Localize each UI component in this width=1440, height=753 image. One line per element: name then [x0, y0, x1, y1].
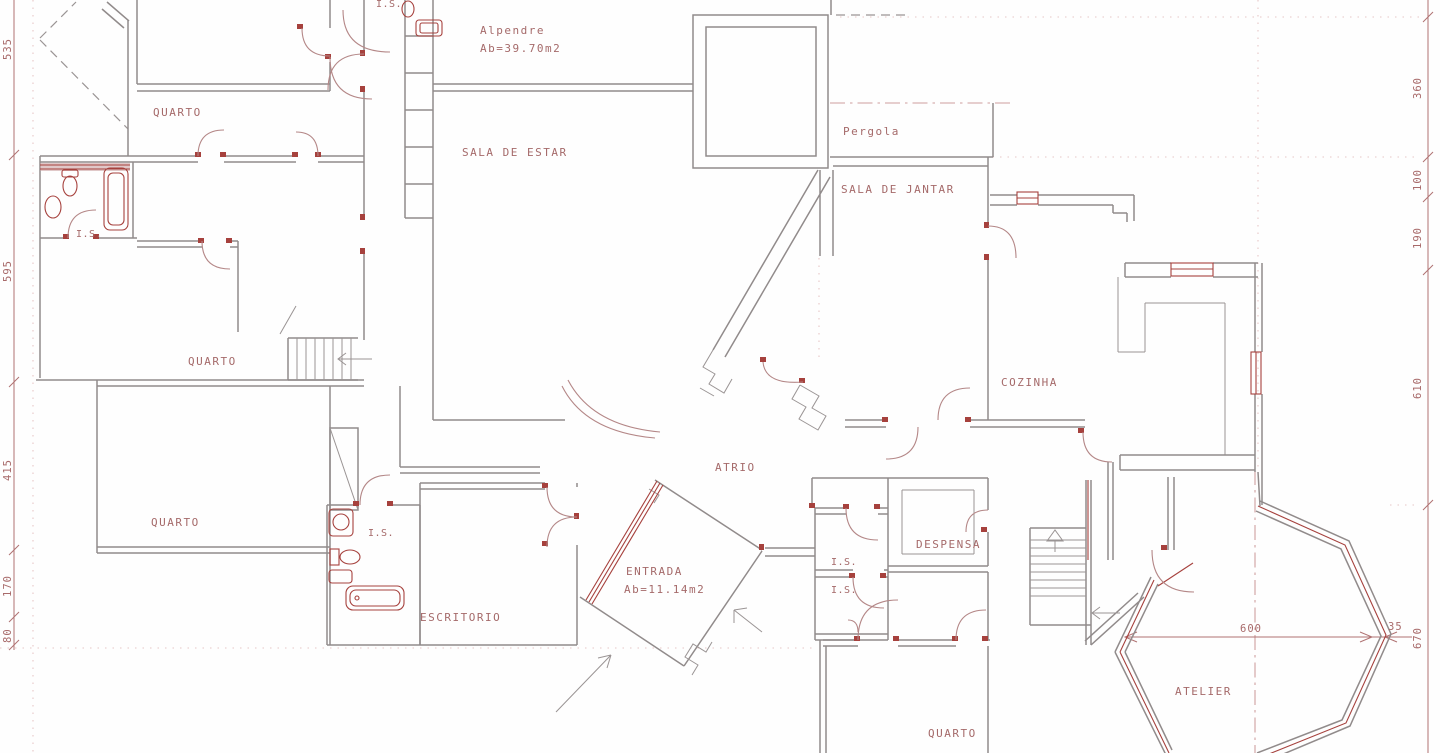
room-area-entrada: Ab=11.14m2 — [624, 583, 705, 596]
fixtures-layer — [45, 1, 442, 610]
dim-right-100: 100 — [1412, 169, 1424, 191]
dim-left-535: 535 — [2, 38, 14, 60]
dim-left-170: 170 — [2, 575, 14, 597]
dim-left-595: 595 — [2, 260, 14, 282]
entrance-arrows — [556, 608, 762, 712]
room-label-sala-de-estar: SALA DE ESTAR — [462, 146, 568, 159]
room-label-cozinha: COZINHA — [1001, 376, 1058, 389]
room-label-alpendre: Alpendre — [480, 24, 545, 37]
dim-atelier-600: 600 — [1240, 623, 1262, 635]
door-jambs — [63, 24, 1167, 641]
dimension-chains — [9, 0, 1433, 753]
accents-layer — [40, 24, 1386, 753]
room-label-quarto-lower: QUARTO — [151, 516, 200, 529]
dim-right-610: 610 — [1412, 377, 1424, 399]
dimension-labels: 535 595 415 170 80 360 100 190 610 670 6… — [2, 38, 1424, 649]
room-label-quarto-top: QUARTO — [153, 106, 202, 119]
room-label-is-top-mid: I.S. — [376, 0, 402, 10]
room-area-alpendre: Ab=39.70m2 — [480, 42, 561, 55]
floor-plan-sheet: QUARTO I.S. I.S. Alpendre Ab=39.70m2 SAL… — [0, 0, 1440, 753]
dim-left-80: 80 — [2, 628, 14, 643]
room-label-sala-de-jantar: SALA DE JANTAR — [841, 183, 955, 196]
stairs-upper-left — [280, 306, 372, 380]
room-label-is-lower: I.S. — [368, 528, 394, 539]
room-label-atelier: ATELIER — [1175, 685, 1232, 698]
room-label-atrio: ATRIO — [715, 461, 756, 474]
doors-layer — [68, 10, 1194, 640]
dim-left-415: 415 — [2, 459, 14, 481]
room-label-is-top-left: I.S. — [76, 229, 102, 240]
dim-atelier-35: 35 — [1388, 621, 1403, 633]
dim-right-670: 670 — [1412, 627, 1424, 649]
floor-plan-svg: QUARTO I.S. I.S. Alpendre Ab=39.70m2 SAL… — [0, 0, 1440, 753]
room-label-entrada: ENTRADA — [626, 565, 683, 578]
stairs-right — [1030, 480, 1120, 625]
dim-right-190: 190 — [1412, 227, 1424, 249]
room-label-pergola: Pergola — [843, 125, 900, 138]
room-label-is-hall-2: I.S. — [831, 585, 857, 596]
room-label-escritorio: ESCRITORIO — [420, 611, 501, 624]
guide-lines — [0, 0, 1420, 753]
walls-layer — [36, 0, 1391, 753]
room-label-despensa: DESPENSA — [916, 538, 981, 551]
labels-layer: QUARTO I.S. I.S. Alpendre Ab=39.70m2 SAL… — [76, 0, 1232, 740]
room-label-quarto-bottom: QUARTO — [928, 727, 977, 740]
room-label-quarto-mid: QUARTO — [188, 355, 237, 368]
room-label-is-hall-1: I.S. — [831, 557, 857, 568]
dim-right-360: 360 — [1412, 77, 1424, 99]
